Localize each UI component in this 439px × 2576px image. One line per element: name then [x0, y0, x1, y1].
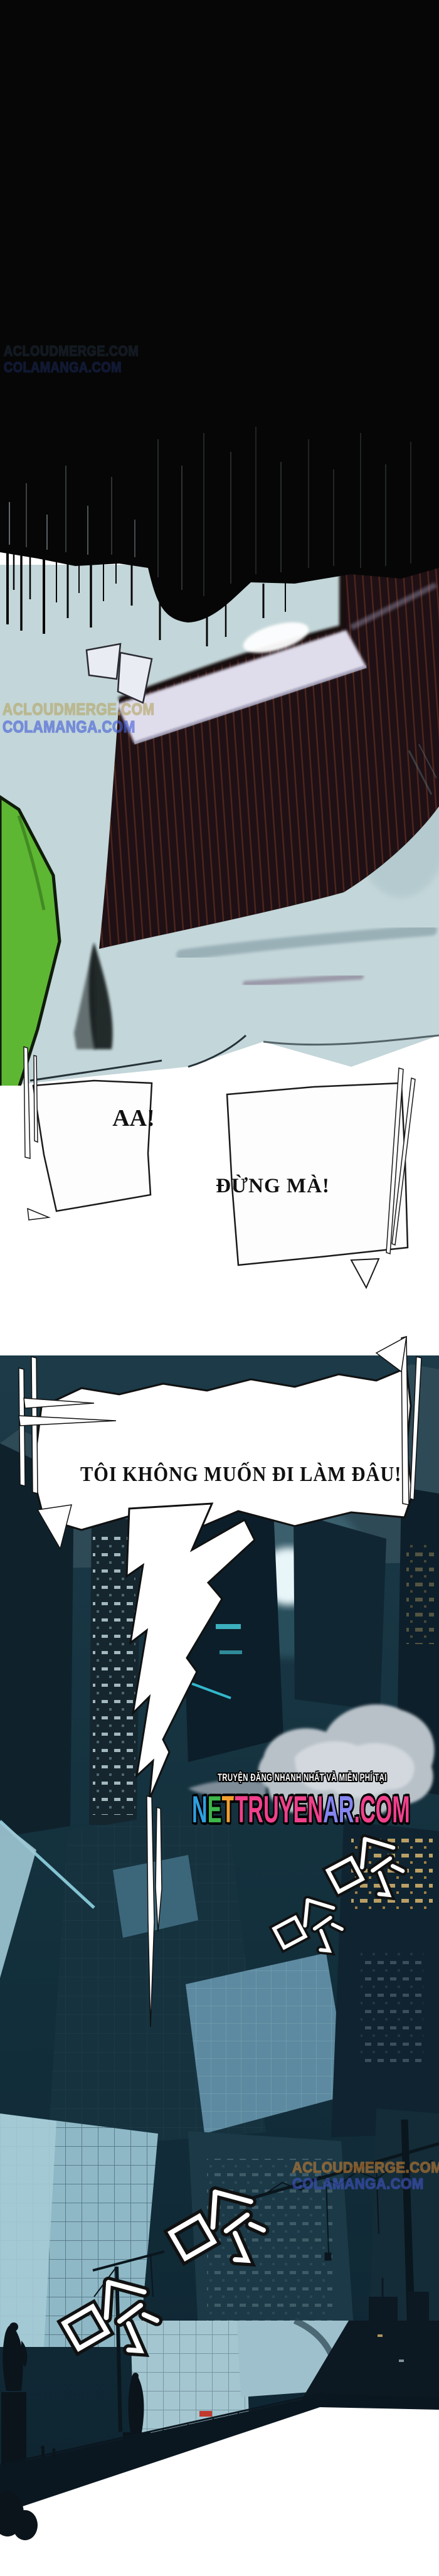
site-letter: E [208, 1791, 222, 1829]
watermark-bottom: ACLOUDMERGE.COM COLAMANGA.COM [292, 2160, 439, 2193]
site-letter: O [376, 1791, 393, 1829]
watermark-line: COLAMANGA.COM [3, 718, 154, 735]
site-name: NETTRUYENAR.COM [192, 1791, 410, 1829]
site-letter: R [248, 1791, 263, 1829]
site-letter: A [323, 1791, 339, 1829]
site-letter: R [339, 1791, 354, 1829]
site-letter: N [192, 1791, 208, 1829]
site-letter: T [222, 1791, 235, 1829]
watermark-line: COLAMANGA.COM [4, 359, 139, 375]
site-letter: T [235, 1791, 248, 1829]
watermark-line: ACLOUDMERGE.COM [292, 2160, 439, 2176]
comic-page: ACLOUDMERGE.COM COLAMANGA.COM ACLOUDMERG… [0, 0, 439, 2576]
site-letter: E [294, 1791, 308, 1829]
promo-tagline: TRUYỆN ĐĂNG NHANH NHẤT VÀ MIỄN PHÍ TẠI [218, 1772, 387, 1784]
watermark-line: ACLOUDMERGE.COM [4, 343, 139, 359]
site-letter: N [307, 1791, 323, 1829]
site-letter: Y [279, 1791, 294, 1829]
speech-text-dung-ma: ĐỪNG MÀ! [213, 1175, 332, 1198]
watermark-middle: ACLOUDMERGE.COM COLAMANGA.COM [3, 700, 154, 735]
site-letter: . [354, 1791, 360, 1829]
night-city-panel-art [0, 1355, 439, 2576]
site-letter: C [360, 1791, 376, 1829]
speech-text-aa: AA! [105, 1104, 162, 1132]
watermark-top: ACLOUDMERGE.COM COLAMANGA.COM [4, 343, 139, 375]
speech-text-shout: TÔI KHÔNG MUỐN ĐI LÀM ĐÂU! [80, 1462, 348, 1487]
watermark-line: COLAMANGA.COM [292, 2176, 439, 2193]
site-letter: U [263, 1791, 279, 1829]
watermark-line: ACLOUDMERGE.COM [3, 700, 154, 718]
site-letter: M [392, 1791, 410, 1829]
